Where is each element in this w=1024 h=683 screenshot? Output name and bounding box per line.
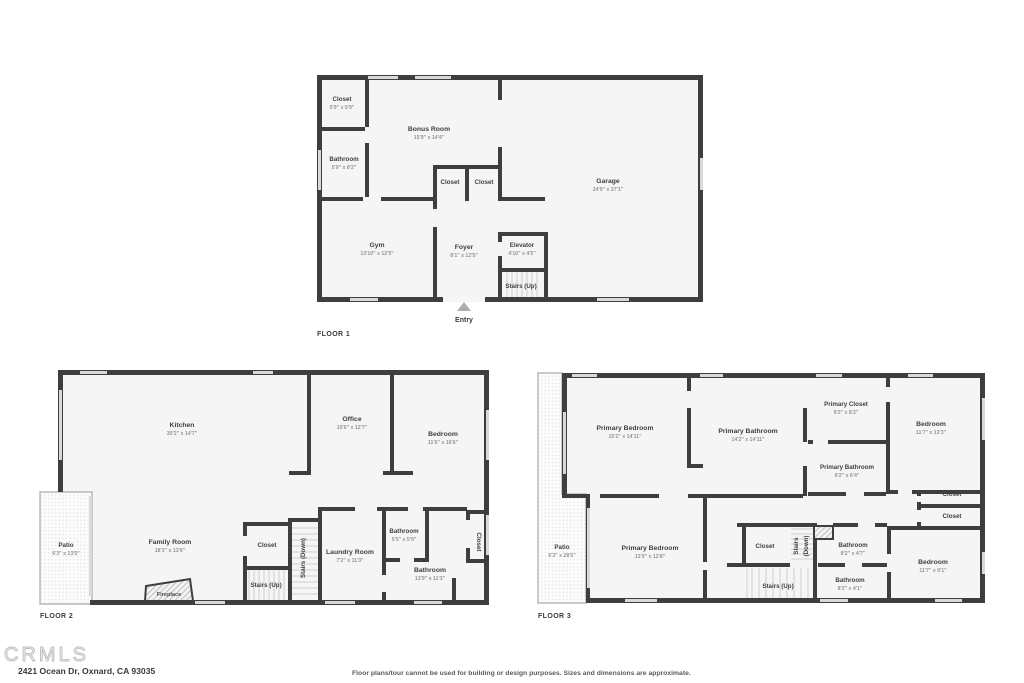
room-dims-f3-primary-bedroom-1: 15'2" x 14'11": [608, 434, 642, 440]
room-label-f2-stairs-up: Stairs (Up): [250, 582, 281, 589]
room-dims-f1-bonus-room: 15'9" x 14'4": [414, 135, 445, 141]
room-label-f2-fireplace: Fireplace: [157, 592, 182, 598]
floor3-title: FLOOR 3: [538, 613, 571, 620]
room-dims-f3-primary-bathroom-2: 9'2" x 6'4": [835, 473, 860, 479]
room-label-f1-bonus-room: Bonus Room: [408, 126, 450, 133]
room-dims-f1-bathroom: 5'9" x 8'2": [332, 165, 357, 171]
room-label-f2-patio: Patio: [58, 542, 73, 549]
room-label-f3-patio: Patio: [554, 544, 569, 551]
room-dims-f1-garage: 24'9" x 27'1": [593, 187, 624, 193]
room-dims-f3-primary-bedroom-2: 13'9" x 12'8": [635, 554, 666, 560]
room-label-f1-closet-mid-left: Closet: [441, 179, 460, 186]
room-label-f1-stairs-up: Stairs (Up): [505, 283, 536, 290]
room-label-f2-bathroom-small: Bathroom: [389, 528, 419, 535]
address-text: 2421 Ocean Dr, Oxnard, CA 93035: [18, 666, 155, 676]
room-label-f1-bathroom: Bathroom: [329, 156, 359, 163]
room-dims-f3-bedroom-tr: 11'7" x 13'3": [916, 430, 947, 436]
floor1-title: FLOOR 1: [317, 331, 350, 338]
floor3-chase-shape: [814, 526, 833, 539]
entry-arrow-icon: [457, 302, 471, 311]
disclaimer-text: Floor plans/tour cannot be used for buil…: [352, 670, 691, 677]
room-dims-f2-office: 10'6" x 12'7": [337, 425, 368, 431]
room-label-f2-bathroom-big: Bathroom: [414, 567, 446, 574]
room-dims-f3-primary-closet: 9'2" x 8'2": [834, 410, 859, 416]
entry-label: Entry: [455, 317, 473, 324]
room-label-f3-closet-b: Closet: [943, 513, 962, 520]
room-dims-f3-primary-bathroom-1: 14'2" x 14'11": [731, 437, 765, 443]
room-label-f2-closet: Closet: [258, 542, 277, 549]
room-dims-f3-bathroom-1: 8'2" x 4'7": [841, 551, 866, 557]
room-dims-f2-bathroom-small: 5'5" x 5'9": [392, 537, 417, 543]
room-label-f1-garage: Garage: [596, 178, 620, 185]
room-dims-f1-closet-tl: 5'9" x 5'9": [330, 105, 355, 111]
floor2-title: FLOOR 2: [40, 613, 73, 620]
room-dims-f2-bedroom: 11'6" x 16'6": [428, 440, 459, 446]
room-label-f1-gym: Gym: [369, 242, 384, 249]
room-label-f1-closet-mid-right: Closet: [475, 179, 494, 186]
room-label-f3-stairs-down-line1: Stairs: [793, 537, 800, 555]
room-label-f3-primary-bathroom-1: Primary Bathroom: [718, 428, 777, 435]
room-dims-f3-bathroom-2: 8'2" x 4'1": [838, 586, 863, 592]
room-label-f3-stairs-down-line2: (Down): [803, 536, 810, 557]
room-label-f3-bedroom-tr: Bedroom: [916, 421, 946, 428]
room-label-f2-closet-right: Closet: [475, 533, 482, 552]
room-label-f3-primary-bedroom-1: Primary Bedroom: [596, 425, 653, 432]
floor-3-plan: Primary Bedroom 15'2" x 14'11" Primary B…: [538, 373, 985, 620]
room-label-f1-elevator: Elevator: [510, 242, 535, 249]
room-label-f3-closet-a: Closet: [943, 491, 962, 498]
room-dims-f3-patio: 6'3" x 28'5": [548, 553, 576, 559]
room-label-f2-family-room: Family Room: [149, 539, 192, 546]
room-label-f3-primary-bedroom-2: Primary Bedroom: [621, 545, 678, 552]
room-dims-f2-family-room: 18'3" x 13'6": [155, 548, 186, 554]
room-label-f3-stairs-up: Stairs (Up): [762, 583, 793, 590]
room-label-f2-bedroom: Bedroom: [428, 431, 458, 438]
room-label-f2-stairs-down: Stairs (Down): [300, 538, 307, 578]
room-dims-f2-bathroom-big: 13'9" x 11'3": [415, 576, 446, 582]
floor-2-plan: Kitchen 30'2" x 14'7" Office 10'6" x 12'…: [40, 370, 489, 620]
room-label-f3-closet-mid: Closet: [756, 543, 775, 550]
room-dims-f2-kitchen: 30'2" x 14'7": [167, 431, 198, 437]
room-label-f3-bathroom-1: Bathroom: [838, 542, 868, 549]
room-label-f3-bathroom-2: Bathroom: [835, 577, 865, 584]
room-label-f3-primary-bathroom-2: Primary Bathroom: [820, 464, 874, 471]
room-dims-f1-gym: 13'10" x 12'5": [360, 251, 394, 257]
room-dims-f2-patio: 6'3" x 13'5": [52, 551, 80, 557]
floorplan-page: Closet 5'9" x 5'9" Bathroom 5'9" x 8'2" …: [0, 0, 1024, 683]
room-label-f1-foyer: Foyer: [455, 244, 474, 251]
room-dims-f3-bedroom-br: 11'7" x 9'1": [919, 568, 947, 574]
room-label-f2-office: Office: [342, 416, 361, 423]
room-label-f3-bedroom-br: Bedroom: [918, 559, 948, 566]
room-label-f2-kitchen: Kitchen: [170, 422, 195, 429]
floor1-footprint: [317, 75, 703, 302]
footer: CRMLS 2421 Ocean Dr, Oxnard, CA 93035 Fl…: [4, 644, 691, 677]
room-label-f2-laundry: Laundry Room: [326, 549, 374, 556]
room-dims-f1-foyer: 8'1" x 12'5": [450, 253, 478, 259]
floorplan-canvas: Closet 5'9" x 5'9" Bathroom 5'9" x 8'2" …: [0, 0, 1024, 683]
floor-1-plan: Closet 5'9" x 5'9" Bathroom 5'9" x 8'2" …: [317, 75, 703, 338]
room-label-f1-closet-tl: Closet: [333, 96, 352, 103]
room-dims-f1-elevator: 4'10" x 4'5": [508, 251, 536, 257]
room-label-f3-primary-closet: Primary Closet: [824, 401, 868, 408]
crmls-logo: CRMLS: [4, 644, 89, 666]
room-dims-f2-laundry: 7'2" x 11'3": [336, 558, 364, 564]
